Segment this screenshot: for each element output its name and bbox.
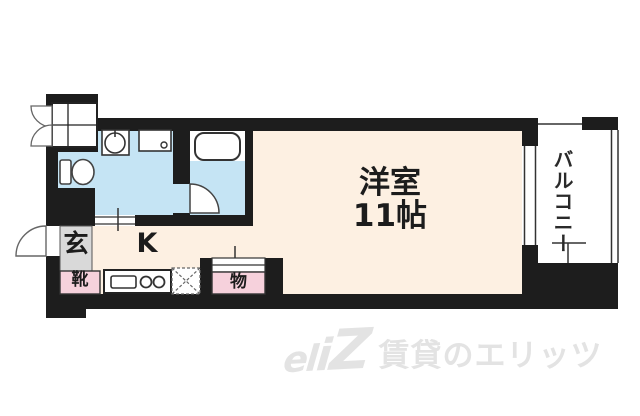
washing-machine-icon (139, 130, 171, 151)
kitchen-counter-icon (104, 270, 171, 293)
wall-bath-right (245, 131, 253, 226)
wall-balcony-bottom-block (533, 263, 618, 309)
wall-closet-right (265, 258, 283, 296)
floor-plan-canvas: 洋室 11帖 K 玄 靴 物 バルコニー eliZ 賃貸のエリッツ (0, 0, 640, 416)
meter-box-icon (31, 103, 97, 147)
shoe-cabinet-label: 靴 (60, 272, 100, 290)
wall-top (98, 118, 538, 131)
elitz-logo-icon: eliZ (282, 328, 371, 383)
stove-burner-icon (154, 277, 165, 288)
washbasin-sink-icon (102, 130, 129, 155)
bathtub-icon (195, 133, 240, 160)
main-room-name: 洋室 (320, 167, 460, 200)
watermark: eliZ 賃貸のエリッツ (284, 330, 602, 381)
entrance-label: 玄 (60, 231, 92, 257)
wall-wet-area-bottom (135, 215, 253, 226)
main-room-size: 11帖 (320, 200, 460, 233)
wall-bottom (60, 294, 540, 309)
kitchen-label: K (122, 230, 172, 258)
main-room-label: 洋室 11帖 (320, 167, 460, 232)
wall-right-top (522, 118, 538, 146)
wall-balcony-top-block (582, 117, 618, 130)
wall-left-upper (46, 150, 58, 190)
balcony-label: バルコニー (551, 133, 572, 269)
toilet-icon (60, 160, 94, 185)
closet-label: 物 (212, 274, 265, 292)
watermark-brand-text: 賃貸のエリッツ (378, 330, 602, 381)
wall-toilet-block (46, 188, 95, 226)
stove-burner-icon (141, 277, 152, 288)
entrance-door-icon (16, 226, 60, 256)
kitchen-sink-icon (111, 276, 136, 288)
refrigerator-space-icon (172, 268, 200, 294)
wall-closet-left (200, 258, 212, 296)
sliding-window-icon (522, 146, 538, 245)
